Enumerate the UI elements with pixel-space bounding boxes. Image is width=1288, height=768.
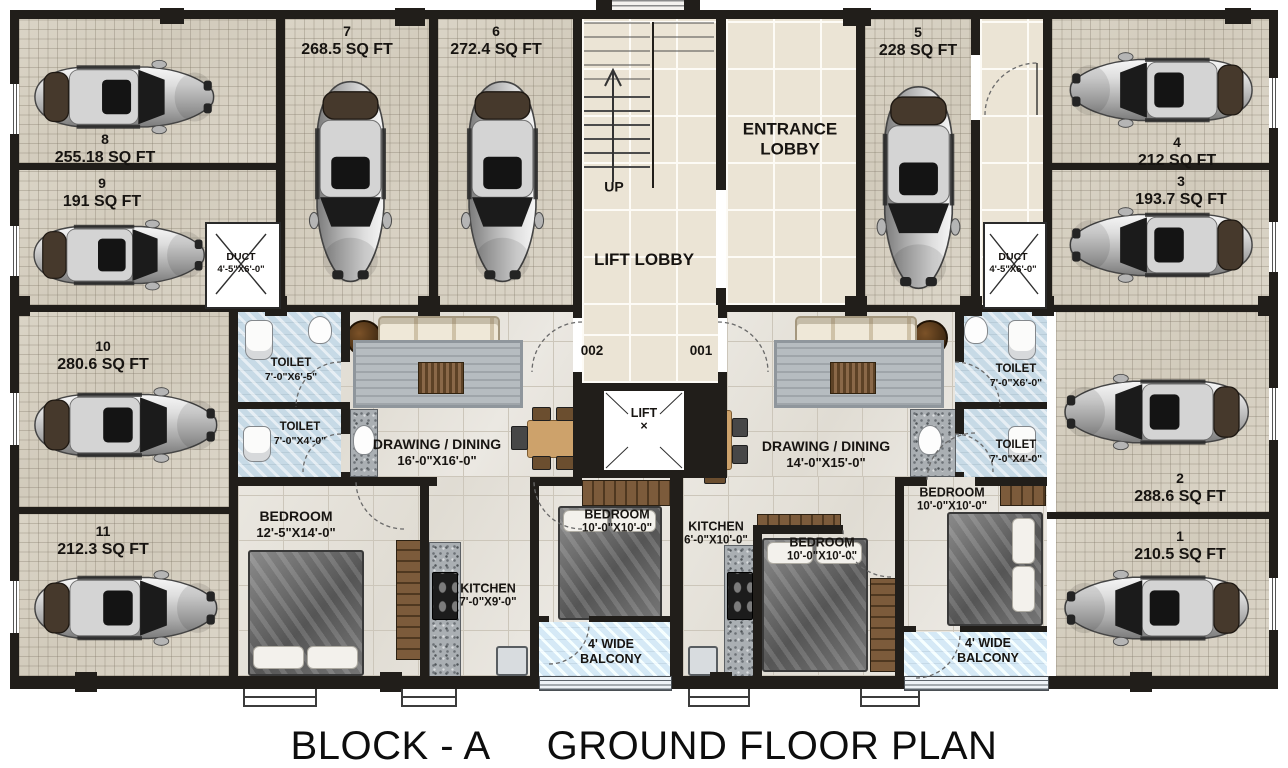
car-parking-3 bbox=[1062, 205, 1265, 285]
parking-number: 4 bbox=[1138, 134, 1216, 151]
stair-divider bbox=[652, 22, 654, 188]
window-bay bbox=[401, 689, 457, 707]
dining-chair bbox=[732, 418, 748, 437]
pillar bbox=[75, 672, 97, 692]
window bbox=[1269, 388, 1278, 440]
room-name: TOILET bbox=[265, 357, 317, 371]
window bbox=[10, 393, 19, 445]
room-name: TOILET bbox=[990, 363, 1042, 377]
parking-label-4: 4 212 SQ FT bbox=[1138, 134, 1216, 170]
room-label-bedroom2-right: BEDROOM 10'-0"X10'-0" bbox=[787, 536, 857, 565]
parking-number: 3 bbox=[1135, 173, 1227, 190]
room-dim: 14'-0"X15'-0" bbox=[762, 455, 890, 471]
parking-label-10: 10 280.6 SQ FT bbox=[57, 338, 149, 374]
wall bbox=[589, 616, 670, 622]
wall bbox=[716, 288, 726, 305]
wall bbox=[718, 305, 727, 318]
plan-title: BLOCK - A GROUND FLOOR PLAN bbox=[0, 724, 1288, 768]
duct-right-label: DUCT 4'-5"X6'-0" bbox=[989, 251, 1036, 275]
parking-area: 210.5 SQ FT bbox=[1134, 545, 1226, 564]
wall-unit-separation bbox=[670, 477, 683, 676]
washbasin bbox=[308, 316, 332, 344]
wall bbox=[718, 372, 727, 383]
window bbox=[1269, 222, 1278, 272]
wall bbox=[716, 19, 726, 190]
flat-001-label: 001 bbox=[690, 343, 713, 359]
wall bbox=[753, 525, 843, 534]
toilet-commode bbox=[245, 320, 273, 360]
parking-area: 280.6 SQ FT bbox=[57, 355, 149, 374]
room-dim: 16'-0"X16'-0" bbox=[373, 453, 501, 469]
washbasin bbox=[918, 425, 942, 455]
flat-002-label: 002 bbox=[581, 343, 604, 359]
pillar bbox=[845, 296, 867, 316]
window bbox=[1269, 78, 1278, 128]
parking-area: 272.4 SQ FT bbox=[450, 40, 542, 59]
wall bbox=[971, 19, 980, 55]
pillow bbox=[253, 646, 304, 669]
wall bbox=[429, 19, 438, 305]
room-label-balcony-right: 4' WIDE BALCONY bbox=[957, 636, 1019, 666]
lift-lobby-label: LIFT LOBBY bbox=[594, 250, 694, 270]
duct-dim: 4'-5"X6'-0" bbox=[989, 264, 1036, 275]
wall bbox=[960, 626, 1047, 632]
parking-number: 7 bbox=[301, 23, 393, 40]
room-label-bedroom-master-left: BEDROOM 12'-5"X14'-0" bbox=[256, 508, 335, 540]
parking-label-7: 7 268.5 SQ FT bbox=[301, 23, 393, 59]
parking-area: 288.6 SQ FT bbox=[1134, 487, 1226, 506]
wall bbox=[856, 19, 865, 305]
washbasin bbox=[353, 425, 375, 455]
room-label-toilet-small-left: TOILET 7'-0"X4'-0" bbox=[274, 421, 326, 447]
wall bbox=[341, 305, 350, 362]
wardrobe bbox=[582, 480, 672, 506]
parking-label-5: 5 228 SQ FT bbox=[879, 24, 957, 60]
wall bbox=[10, 507, 229, 514]
wall bbox=[955, 472, 964, 477]
parking-number: 8 bbox=[55, 131, 156, 148]
window bbox=[10, 84, 19, 134]
parking-label-8: 8 255.18 SQ FT bbox=[55, 131, 156, 167]
room-dim: 7'-0"X4'-0" bbox=[274, 435, 326, 448]
up-label: UP bbox=[604, 179, 623, 196]
parking-area: 191 SQ FT bbox=[63, 192, 141, 211]
stair-treads-upper bbox=[584, 22, 650, 92]
room-label-toilet-big-right: TOILET 7'-0"X6'-0" bbox=[990, 363, 1042, 389]
pillow bbox=[1012, 566, 1035, 612]
parking-area: 212 SQ FT bbox=[1138, 151, 1216, 170]
dining-chair bbox=[532, 456, 551, 470]
duct-dim: 4'-5"X6'-0" bbox=[217, 264, 264, 275]
car-parking-4 bbox=[1062, 50, 1265, 130]
balcony-railing-left bbox=[539, 676, 672, 691]
car-parking-6 bbox=[459, 68, 547, 291]
parking-label-11: 11 212.3 SQ FT bbox=[57, 523, 149, 559]
parking-label-1: 1 210.5 SQ FT bbox=[1134, 528, 1226, 564]
room-name: BEDROOM bbox=[787, 536, 857, 551]
car-parking-9 bbox=[22, 216, 212, 294]
parking-label-6: 6 272.4 SQ FT bbox=[450, 23, 542, 59]
wardrobe bbox=[870, 578, 897, 672]
stair-treads bbox=[584, 96, 650, 180]
room-dim: 7'-0"X6'-0" bbox=[990, 377, 1042, 390]
room-label-toilet-big-left: TOILET 7'-0"X6'-5" bbox=[265, 357, 317, 383]
parking-number: 1 bbox=[1134, 528, 1226, 545]
wall bbox=[229, 305, 238, 676]
wall bbox=[420, 477, 429, 676]
pillow bbox=[307, 646, 358, 669]
window-bay bbox=[860, 689, 920, 707]
balcony-line2: BALCONY bbox=[957, 651, 1019, 666]
balcony-line1: 4' WIDE bbox=[957, 636, 1019, 651]
pillar bbox=[160, 8, 184, 24]
parking-label-2: 2 288.6 SQ FT bbox=[1134, 470, 1226, 506]
car-parking-11 bbox=[22, 568, 225, 648]
room-dim: 6'-0"X10'-0" bbox=[684, 535, 748, 549]
room-name: BEDROOM bbox=[582, 508, 652, 523]
wall bbox=[539, 616, 549, 622]
room-label-kitchen-right: KITCHEN 6'-0"X10'-0" bbox=[684, 520, 748, 549]
window-bay bbox=[688, 689, 750, 707]
parking-number: 9 bbox=[63, 175, 141, 192]
coffee-table-right bbox=[830, 362, 876, 394]
parking-number: 10 bbox=[57, 338, 149, 355]
wall bbox=[895, 477, 904, 676]
pillar bbox=[380, 672, 402, 692]
car-parking-2 bbox=[1056, 372, 1262, 452]
room-label-balcony-left: 4' WIDE BALCONY bbox=[580, 637, 642, 667]
balcony-line2: BALCONY bbox=[580, 652, 642, 667]
parking-number: 11 bbox=[57, 523, 149, 540]
plan-title-name: GROUND FLOOR PLAN bbox=[547, 724, 998, 768]
duct-left-label: DUCT 4'-5"X6'-0" bbox=[217, 251, 264, 275]
room-dim: 7'-0"X9'-0" bbox=[459, 597, 516, 611]
wall bbox=[1047, 512, 1269, 519]
room-name: TOILET bbox=[274, 421, 326, 435]
wall bbox=[573, 372, 582, 383]
wardrobe bbox=[396, 540, 422, 660]
pillar bbox=[395, 8, 425, 26]
pillar bbox=[1225, 8, 1251, 24]
stair-treads-return bbox=[654, 22, 714, 64]
wall bbox=[904, 626, 916, 632]
kitchen-sink bbox=[496, 646, 528, 676]
balcony-railing-right bbox=[904, 676, 1049, 691]
pillar bbox=[418, 296, 440, 316]
parking-area: 228 SQ FT bbox=[879, 41, 957, 60]
dining-chair bbox=[732, 445, 748, 464]
room-label-toilet-small-right: TOILET 7'-0"X4'-0" bbox=[990, 439, 1042, 465]
car-parking-5 bbox=[874, 73, 964, 298]
room-name: KITCHEN bbox=[459, 582, 516, 597]
window bbox=[10, 226, 19, 276]
parking-number: 5 bbox=[879, 24, 957, 41]
balcony-line1: 4' WIDE bbox=[580, 637, 642, 652]
wall bbox=[341, 402, 350, 434]
pillar bbox=[1130, 672, 1152, 692]
dining-chair bbox=[532, 407, 551, 421]
stove bbox=[727, 572, 753, 620]
parking-label-9: 9 191 SQ FT bbox=[63, 175, 141, 211]
plan-title-block: BLOCK - A bbox=[291, 724, 491, 768]
parking-label-3: 3 193.7 SQ FT bbox=[1135, 173, 1227, 209]
parking-area: 268.5 SQ FT bbox=[301, 40, 393, 59]
room-dim: 7'-0"X6'-5" bbox=[265, 371, 317, 384]
toilet-commode bbox=[1008, 320, 1036, 360]
parking-area: 193.7 SQ FT bbox=[1135, 190, 1227, 209]
room-dim: 10'-0"X10'-0" bbox=[582, 523, 652, 537]
wall bbox=[573, 19, 582, 318]
duct-name: DUCT bbox=[217, 251, 264, 264]
room-name: DRAWING / DINING bbox=[373, 436, 501, 453]
room-label-drawing-left: DRAWING / DINING 16'-0"X16'-0" bbox=[373, 436, 501, 468]
window bbox=[1269, 578, 1278, 630]
room-name: BEDROOM bbox=[917, 486, 987, 501]
room-name: DRAWING / DINING bbox=[762, 438, 890, 455]
room-dim: 12'-5"X14'-0" bbox=[256, 525, 335, 541]
room-dim: 7'-0"X4'-0" bbox=[990, 453, 1042, 466]
room-label-bedroom2-left: BEDROOM 10'-0"X10'-0" bbox=[582, 508, 652, 537]
car-parking-7 bbox=[307, 68, 395, 291]
parking-area: 255.18 SQ FT bbox=[55, 148, 156, 167]
floor-plan: 8 255.18 SQ FT 9 191 SQ FT 7 268.5 SQ FT… bbox=[0, 0, 1288, 768]
parking-number: 2 bbox=[1134, 470, 1226, 487]
wall bbox=[530, 477, 539, 676]
coffee-table-left bbox=[418, 362, 464, 394]
room-name: BEDROOM bbox=[256, 508, 335, 525]
room-dim: 10'-0"X10'-0" bbox=[787, 551, 857, 565]
parking-area: 212.3 SQ FT bbox=[57, 540, 149, 559]
car-parking-8 bbox=[22, 58, 222, 136]
entrance-lobby-floor bbox=[726, 19, 856, 305]
lift-x-mark: × bbox=[631, 420, 657, 433]
pillar bbox=[10, 296, 30, 316]
wall bbox=[955, 402, 1047, 409]
wall bbox=[10, 305, 573, 312]
car-parking-1 bbox=[1056, 568, 1262, 648]
pillar bbox=[960, 296, 982, 316]
pillar bbox=[1258, 296, 1278, 316]
wall bbox=[971, 120, 980, 305]
room-label-kitchen-left: KITCHEN 7'-0"X9'-0" bbox=[459, 582, 516, 611]
entrance-lobby-label: ENTRANCE LOBBY bbox=[725, 120, 855, 161]
toilet-commode bbox=[243, 426, 271, 462]
dining-chair bbox=[511, 426, 528, 450]
car-parking-10 bbox=[22, 385, 225, 465]
room-label-drawing-right: DRAWING / DINING 14'-0"X15'-0" bbox=[762, 438, 890, 470]
parking-number: 6 bbox=[450, 23, 542, 40]
duct-name: DUCT bbox=[989, 251, 1036, 264]
room-dim: 10'-0"X10'-0" bbox=[917, 501, 987, 515]
room-name: KITCHEN bbox=[684, 520, 748, 535]
window-bay bbox=[243, 689, 317, 707]
stove bbox=[432, 572, 458, 620]
wall bbox=[753, 525, 762, 676]
window bbox=[10, 581, 19, 633]
wall bbox=[229, 477, 437, 486]
wall bbox=[229, 402, 341, 409]
wall-outer-top bbox=[10, 10, 1278, 19]
washbasin bbox=[964, 316, 988, 344]
lift-label: LIFT × bbox=[631, 407, 657, 433]
room-label-bedroom3-right: BEDROOM 10'-0"X10'-0" bbox=[917, 486, 987, 515]
pillar bbox=[843, 8, 871, 26]
pillow bbox=[1012, 518, 1035, 564]
room-name: TOILET bbox=[990, 439, 1042, 453]
